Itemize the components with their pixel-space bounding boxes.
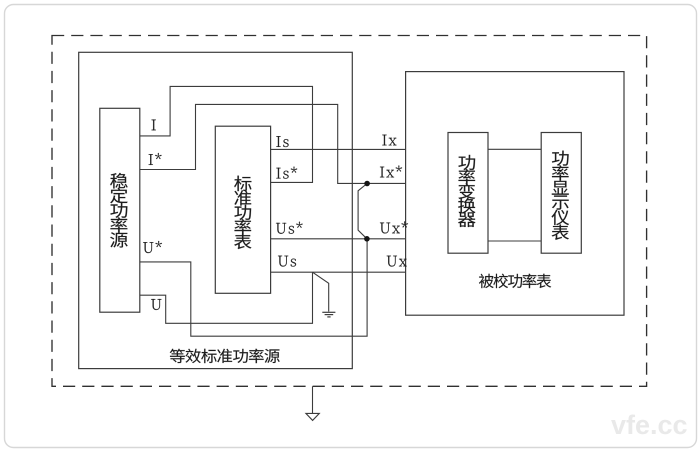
svg-text:vfe.cc: vfe.cc [611,410,688,440]
